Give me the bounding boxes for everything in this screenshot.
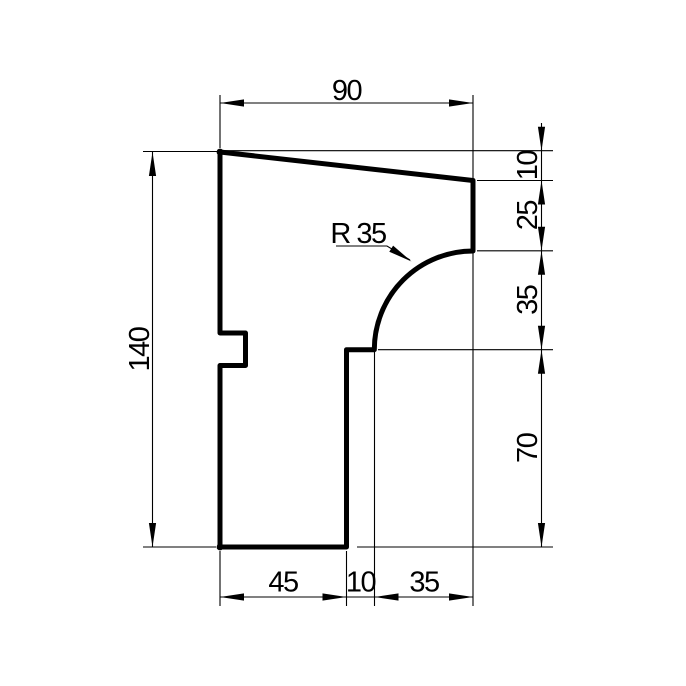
dim-label-right-25: 25 [512, 201, 544, 231]
dim-label-bottom-10: 10 [346, 567, 376, 599]
technical-drawing-svg: 90 140 10 25 35 70 45 10 35 R 35 [0, 0, 686, 686]
dim-label-right-10: 10 [512, 151, 544, 181]
dim-label-bottom-45: 45 [268, 567, 298, 599]
dimension-labels: 90 140 10 25 35 70 45 10 35 R 35 [124, 75, 544, 599]
dim-label-left-140: 140 [124, 327, 156, 371]
dim-label-right-70: 70 [512, 433, 544, 463]
arrowhead [375, 593, 399, 600]
arrowhead [538, 523, 545, 547]
radius-label: R 35 [330, 218, 386, 250]
arrowhead [449, 99, 473, 106]
arrowhead [538, 181, 545, 205]
arrowhead [220, 99, 244, 106]
dim-label-top-90: 90 [332, 75, 362, 107]
arrowhead [220, 593, 244, 600]
arrowhead [538, 127, 545, 151]
arrowhead [323, 593, 347, 600]
arrowhead [149, 152, 156, 176]
drawing-canvas: 90 140 10 25 35 70 45 10 35 R 35 [0, 0, 686, 686]
arrowhead [449, 593, 473, 600]
arrowhead [538, 350, 545, 374]
profile-corner-dot [217, 544, 224, 551]
dim-label-bottom-35: 35 [409, 567, 439, 599]
arrowhead [149, 523, 156, 547]
radius-leader-arrowhead [389, 246, 411, 262]
dim-label-right-35: 35 [512, 285, 544, 315]
profile-corner-dot [217, 149, 224, 156]
arrowhead [538, 251, 545, 275]
arrowhead [538, 326, 545, 350]
